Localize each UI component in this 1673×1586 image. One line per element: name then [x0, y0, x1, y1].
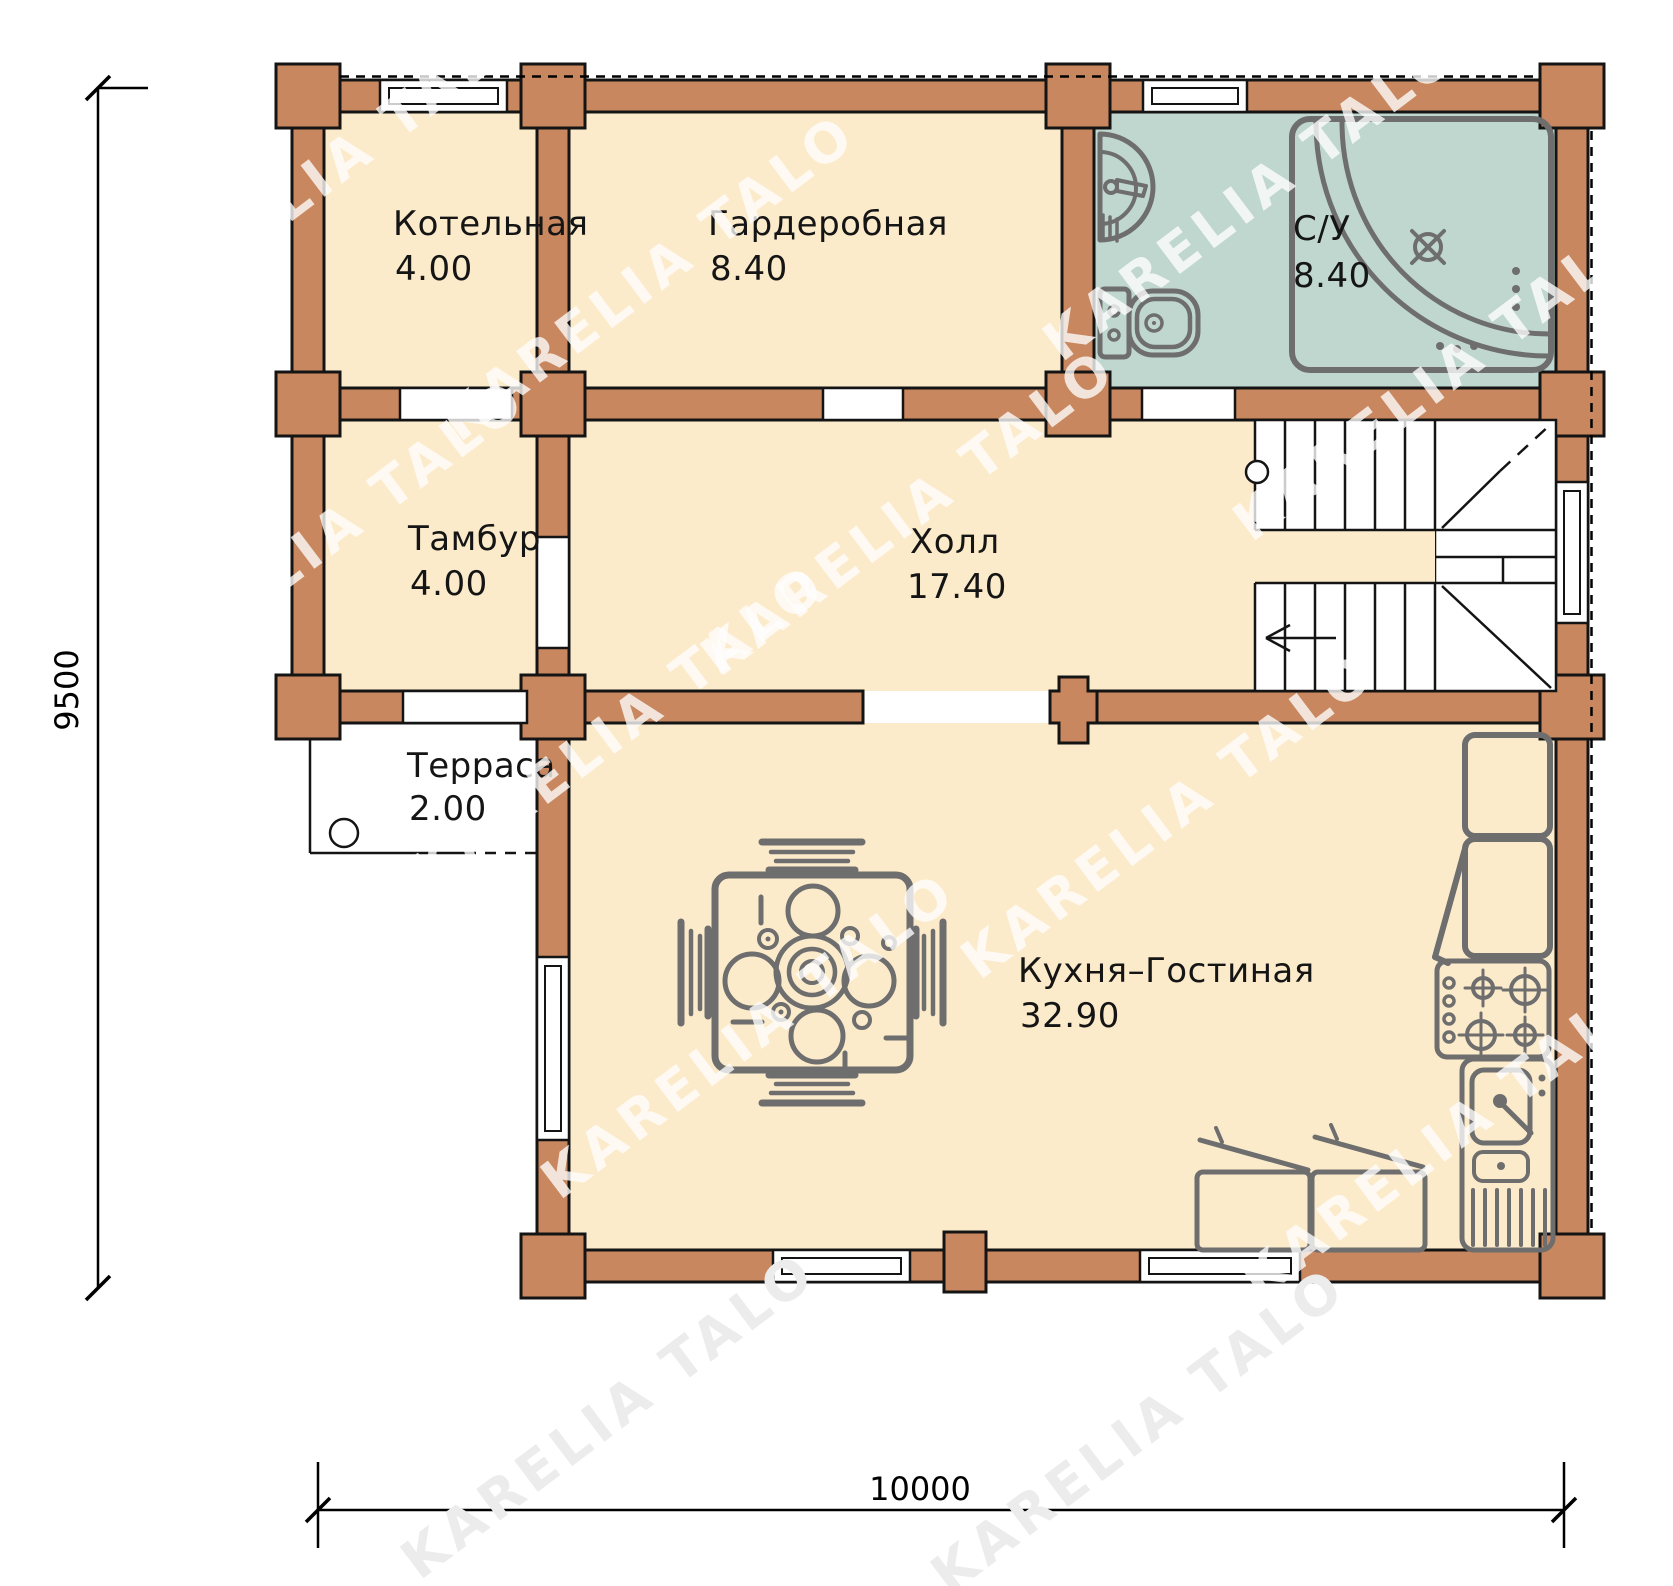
room-area-hall: 17.40 [907, 567, 1007, 607]
door-wardrobe-hall [823, 388, 903, 420]
floor-plan-page: Котельная 4.00 Гардеробная 8.40 С/У 8.40… [0, 0, 1673, 1586]
room-label-vestibule: Тамбур [407, 519, 541, 559]
dimension-width-label: 10000 [869, 1470, 971, 1508]
room-label-kitchen: Кухня–Гостиная [1018, 951, 1315, 991]
wall-bottom [537, 1250, 1556, 1282]
window-top-bathroom [1143, 80, 1247, 112]
wall-post [276, 372, 340, 436]
window-right-stairs [1556, 482, 1588, 623]
room-label-boiler: Котельная [393, 204, 588, 244]
terrace-column [330, 819, 358, 847]
wall-post [276, 64, 340, 128]
room-label-bathroom: С/У [1293, 209, 1350, 249]
wall-post [521, 64, 585, 128]
room-area-vestibule: 4.00 [410, 564, 488, 604]
wall-post [1046, 64, 1110, 128]
door-bathroom [1142, 388, 1235, 420]
door-vestibule-hall [537, 537, 569, 648]
room-area-boiler: 4.00 [395, 249, 473, 289]
wall-post [1540, 64, 1604, 128]
dimension-height-label: 9500 [48, 649, 86, 730]
wall-post [521, 1234, 585, 1298]
room-area-bathroom: 8.40 [1293, 256, 1371, 296]
watermark-text: KARELIA TALO [919, 1254, 1358, 1586]
watermark-text: KARELIA TALO [389, 1239, 828, 1586]
window-kitchen-left [537, 957, 569, 1140]
door-entrance [403, 691, 527, 723]
wall-post [944, 1232, 986, 1292]
room-area-kitchen: 32.90 [1020, 996, 1120, 1036]
floor-plan: Котельная 4.00 Гардеробная 8.40 С/У 8.40… [0, 0, 1673, 1586]
wall-post [276, 675, 340, 739]
